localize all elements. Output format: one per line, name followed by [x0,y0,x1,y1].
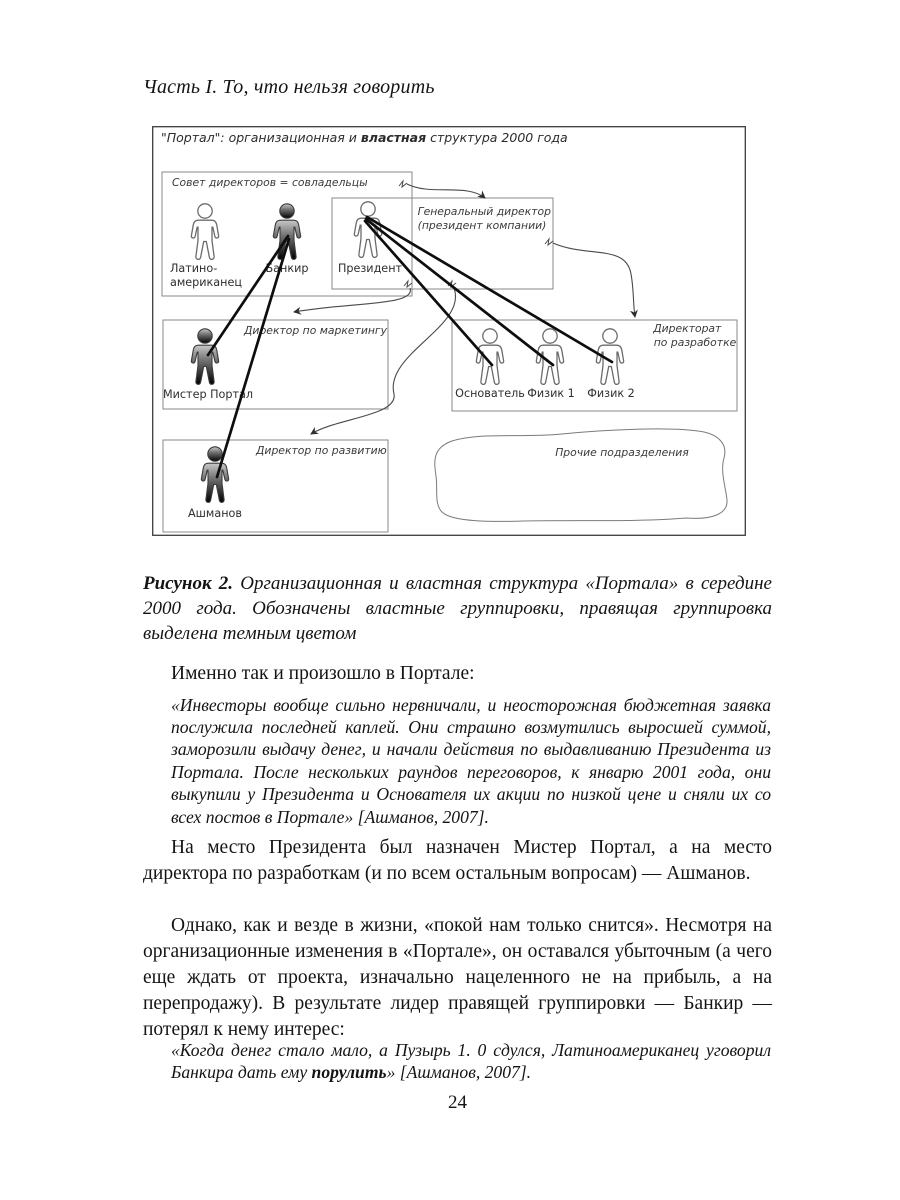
figure-caption-text: Организационная и властная структура «По… [143,573,772,644]
running-head: Часть I. То, что нельзя говорить [143,76,773,99]
council-label: Совет директоров = совладельцы [172,176,368,189]
marketing-label: Директор по маркетингу [243,324,388,337]
ashmanov-label: Ашманов [188,507,242,520]
banker-label: Банкир [266,262,309,275]
figure-caption-label: Рисунок 2. [143,573,233,594]
physicist1-label: Физик 1 [527,387,575,400]
book-page: Часть I. То, что нельзя говорить [0,0,900,1200]
org-chart-svg: "Портал": организационная и властная стр… [152,126,746,536]
physicist2-label: Физик 2 [587,387,635,400]
blockquote-banker-bold: порулить [312,1062,387,1082]
development-label: Директор по развитию [255,444,387,457]
paragraph-however: Однако, как и везде в жизни, «покой нам … [143,913,772,1043]
founder-label: Основатель [455,387,525,400]
ceo-label: Генеральный директор (президент компании… [418,205,555,232]
diagram-title: "Портал": организационная и властная стр… [161,130,568,145]
figure-caption: Рисунок 2. Организационная и властная ст… [143,571,772,646]
blockquote-banker-post: » [Ашманов, 2007]. [387,1062,532,1082]
blockquote-investors: «Инвесторы вообще сильно нервничали, и н… [171,694,771,828]
paragraph-intro: Именно так и произошло в Портале: [143,661,772,687]
figure-2-diagram: "Портал": организационная и властная стр… [152,126,746,536]
paragraph-appointments: На место Президента был назначен Мистер … [143,835,772,887]
other-departments-label: Прочие подразделения [555,446,689,459]
page-number: 24 [143,1092,772,1114]
president-label: Президент [338,262,403,275]
blockquote-banker: «Когда денег стало мало, а Пузырь 1. 0 с… [171,1039,771,1084]
rnd-label: Директорат по разработке [652,322,736,349]
